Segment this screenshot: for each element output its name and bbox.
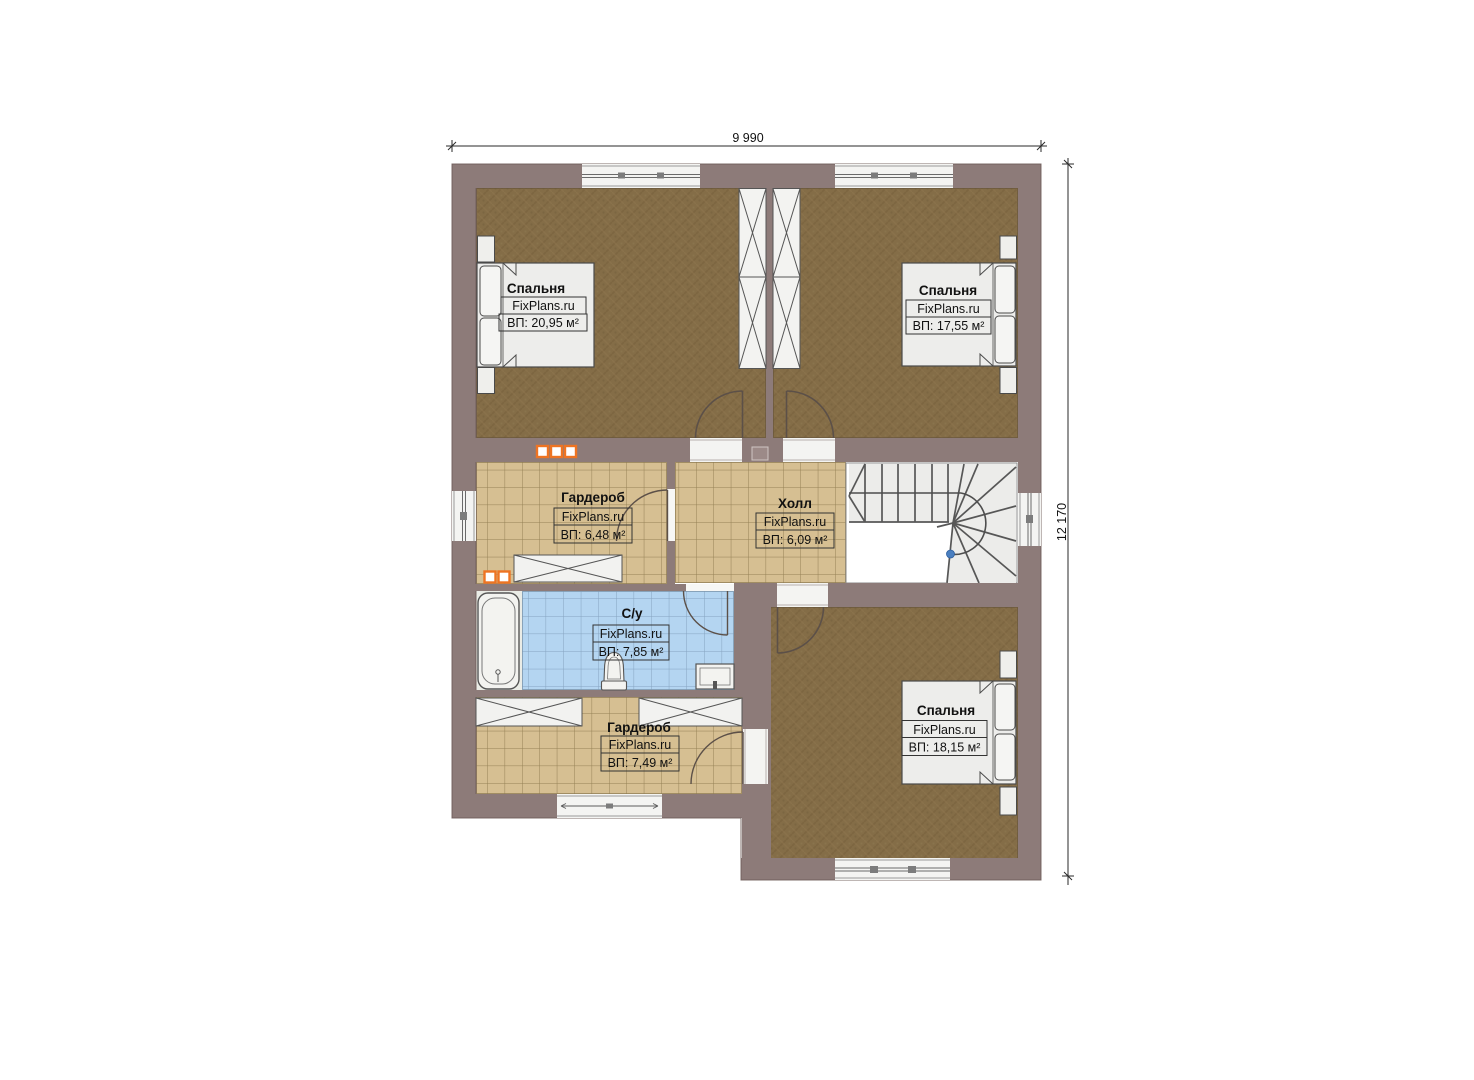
- svg-text:Спальня: Спальня: [919, 283, 977, 298]
- svg-text:Спальня: Спальня: [507, 281, 565, 296]
- svg-text:9 990: 9 990: [732, 131, 763, 145]
- svg-text:ВП: 6,48 м²: ВП: 6,48 м²: [561, 528, 626, 542]
- svg-text:Спальня: Спальня: [917, 703, 975, 718]
- svg-text:ВП: 17,55 м²: ВП: 17,55 м²: [913, 319, 985, 333]
- svg-text:FixPlans.ru: FixPlans.ru: [913, 723, 976, 737]
- svg-text:ВП: 20,95 м²: ВП: 20,95 м²: [507, 316, 579, 330]
- svg-text:ВП: 6,09 м²: ВП: 6,09 м²: [763, 533, 828, 547]
- svg-text:Гардероб: Гардероб: [607, 720, 671, 735]
- svg-text:FixPlans.ru: FixPlans.ru: [562, 510, 625, 524]
- svg-text:FixPlans.ru: FixPlans.ru: [600, 627, 663, 641]
- svg-text:ВП: 18,15 м²: ВП: 18,15 м²: [909, 741, 981, 755]
- svg-text:FixPlans.ru: FixPlans.ru: [609, 738, 672, 752]
- svg-text:ВП: 7,49 м²: ВП: 7,49 м²: [608, 756, 673, 770]
- svg-text:Холл: Холл: [778, 496, 812, 511]
- svg-text:С/у: С/у: [621, 606, 643, 621]
- svg-text:FixPlans.ru: FixPlans.ru: [917, 302, 980, 316]
- svg-text:12 170: 12 170: [1055, 503, 1069, 541]
- svg-text:FixPlans.ru: FixPlans.ru: [764, 515, 827, 529]
- svg-text:Гардероб: Гардероб: [561, 490, 625, 505]
- svg-text:ВП: 7,85 м²: ВП: 7,85 м²: [599, 645, 664, 659]
- svg-text:FixPlans.ru: FixPlans.ru: [512, 299, 575, 313]
